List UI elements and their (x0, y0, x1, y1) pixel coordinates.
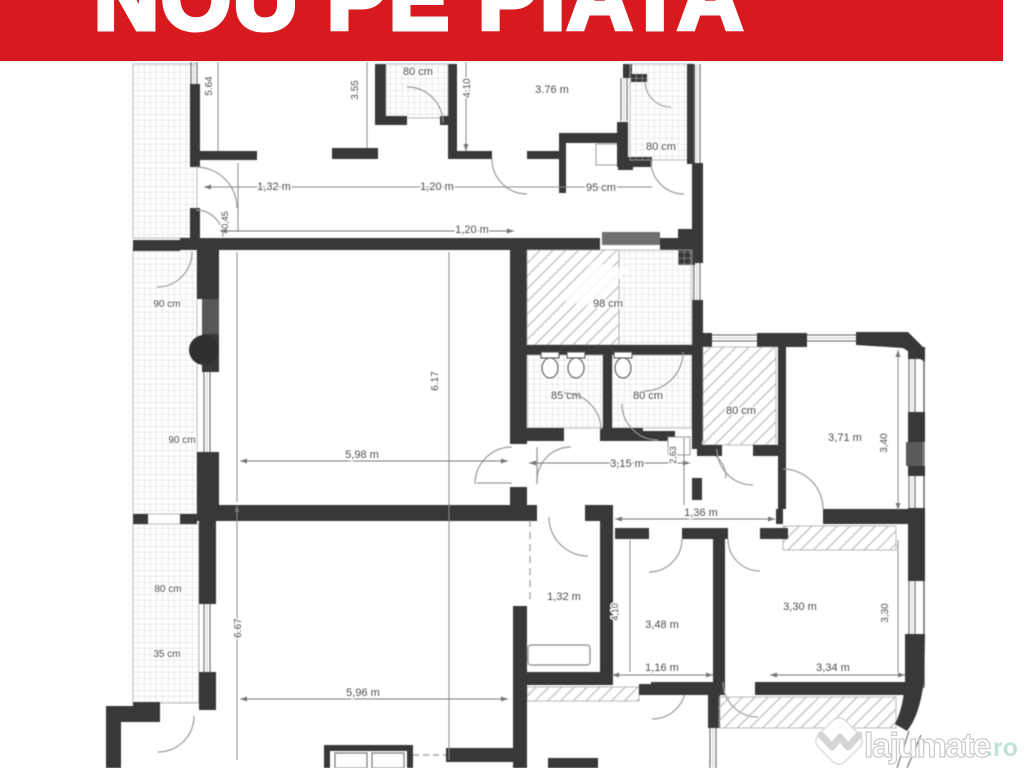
svg-text:lajumate: lajumate (864, 727, 991, 765)
svg-text:.ro: .ro (986, 734, 1018, 762)
